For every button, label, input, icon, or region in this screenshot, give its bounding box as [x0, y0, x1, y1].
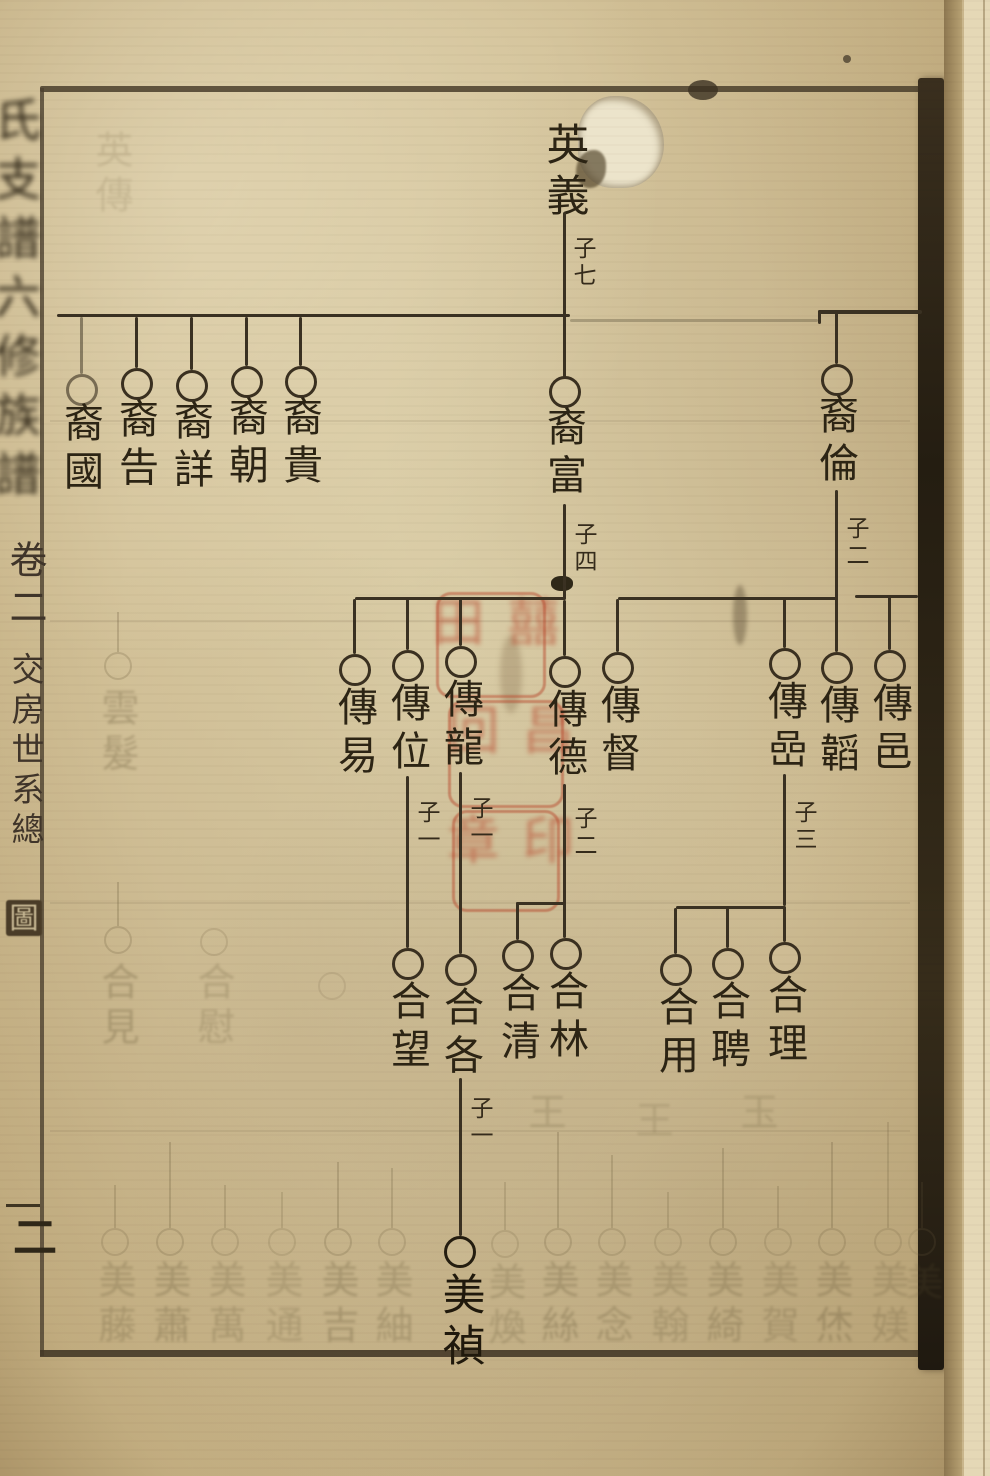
gen1-node-name: 裔告: [115, 398, 155, 494]
node-circle: [549, 656, 581, 688]
page-edge-crease: [983, 0, 985, 1476]
connector-line: [459, 772, 462, 954]
connector-line: [835, 490, 838, 652]
sons-count-label: 子二: [843, 516, 866, 570]
connector-line: [563, 902, 566, 938]
connector-line: [353, 599, 356, 654]
frame-bottom-border: [40, 1350, 940, 1357]
node-circle: [769, 942, 801, 974]
volume-label: 卷二: [6, 540, 44, 634]
node-circle: [285, 366, 317, 398]
ink-blot: [688, 80, 718, 100]
gen3-node-name: 合望: [387, 980, 427, 1076]
sibling-rail-gen1-right: [818, 310, 922, 314]
node-circle: [550, 938, 582, 970]
node-circle: [392, 650, 424, 682]
sibling-rail-gen1-faded: [570, 319, 818, 322]
gen3-node-name: 合聘: [707, 980, 747, 1076]
ink-speck: [843, 55, 851, 63]
connector-line: [299, 317, 302, 366]
gen2-node-name: 傳龍: [440, 678, 480, 774]
connector-line: [783, 774, 786, 906]
sons-count-label: 子一: [467, 1096, 490, 1150]
node-circle: [445, 954, 477, 986]
sons-count-label: 子四: [571, 522, 594, 576]
node-circle: [549, 376, 581, 408]
connector-line: [783, 906, 786, 942]
connector-line: [888, 597, 891, 650]
connector-line: [563, 504, 566, 600]
root-ancestor-name: 英義: [542, 122, 585, 224]
connector-line: [616, 599, 619, 652]
node-circle: [231, 366, 263, 398]
connector-line: [80, 317, 83, 374]
gen3-node-name: 合用: [655, 986, 695, 1082]
sibling-rail-gen3-small: [516, 902, 565, 905]
node-circle: [176, 370, 208, 402]
gen2-node-name: 傳嵒: [764, 680, 804, 776]
connector-line: [135, 317, 138, 368]
node-circle: [712, 948, 744, 980]
node-circle: [445, 646, 477, 678]
gen1-node-name: 裔貴: [279, 396, 319, 492]
gen3-node-name: 合清: [497, 972, 537, 1068]
sibling-rail-gen1: [57, 314, 570, 317]
section-title: 交房世系總: [9, 652, 42, 852]
gen3-node-name: 合各: [440, 986, 480, 1082]
connector-line: [835, 312, 838, 364]
sons-count-label: 子一: [467, 796, 490, 850]
gen2-node-name: 傳督: [597, 684, 637, 780]
node-circle: [602, 652, 634, 684]
connector-line: [459, 1078, 462, 1236]
gen1-node-name: 裔倫: [815, 394, 855, 490]
gen4-node-name: 美禎: [438, 1272, 481, 1374]
gen1-node-name: 裔富: [543, 406, 583, 502]
gen2-node-name: 傳韜: [816, 684, 856, 780]
connector-line: [406, 599, 409, 650]
gen2-node-name: 傳德: [544, 688, 584, 784]
root-sons-count-label: 子七: [570, 236, 593, 290]
sons-count-label: 子一: [414, 800, 437, 854]
connector-line: [406, 776, 409, 948]
gen2-node-name: 傳易: [334, 686, 374, 782]
gen2-node-name: 傳邑: [869, 682, 909, 778]
rail-end-tick: [818, 310, 821, 324]
frame-top-border: [40, 86, 938, 92]
genealogy-page-scan: 氏支譜六修族譜 卷二 交房世系總 圖 二 囍田 昌回 印章 英義 子七 裔國 裔…: [0, 0, 990, 1476]
node-circle: [339, 654, 371, 686]
gen3-node-name: 合理: [764, 974, 804, 1070]
sons-count-label: 子二: [571, 806, 594, 860]
connector-line: [783, 599, 786, 648]
node-circle: [121, 368, 153, 400]
ink-junction-blob: [551, 576, 573, 591]
connector-line: [516, 902, 519, 940]
connector-line: [674, 908, 677, 954]
section-title-last-char-inverse: 圖: [6, 900, 42, 936]
connector-line: [245, 317, 248, 366]
next-page-strip: [962, 0, 990, 1476]
gen3-node-name: 合林: [545, 970, 585, 1066]
node-circle: [874, 650, 906, 682]
connector-line: [563, 784, 566, 904]
sons-count-label: 子三: [791, 800, 814, 854]
connector-line: [563, 212, 566, 378]
node-circle: [769, 648, 801, 680]
sibling-rail-gen2-edge: [855, 595, 918, 598]
seal-glyphs: 印章: [431, 813, 581, 909]
connector-line: [459, 599, 462, 646]
connector-line: [563, 600, 566, 656]
ink-smear: [733, 585, 747, 645]
node-circle: [821, 652, 853, 684]
page-number-rule: [6, 1204, 40, 1207]
connector-line: [190, 317, 193, 370]
node-circle: [660, 954, 692, 986]
gen1-node-name: 裔朝: [225, 396, 265, 492]
gen1-node-name: 裔詳: [170, 400, 210, 496]
node-circle: [502, 940, 534, 972]
gen2-node-name: 傳位: [387, 682, 427, 778]
node-circle: [392, 948, 424, 980]
page-number: 二: [8, 1214, 52, 1258]
node-circle: [444, 1236, 476, 1268]
spine-title-smudged: 氏支譜六修族譜: [0, 96, 38, 536]
node-circle: [821, 364, 853, 396]
page-edge-shadow: [944, 0, 962, 1476]
connector-line: [726, 908, 729, 948]
sibling-rail-gen3-right: [676, 906, 785, 909]
sibling-rail-gen2-right: [618, 597, 837, 600]
frame-right-border: [918, 78, 944, 1370]
gen1-node-name: 裔國: [60, 402, 100, 498]
